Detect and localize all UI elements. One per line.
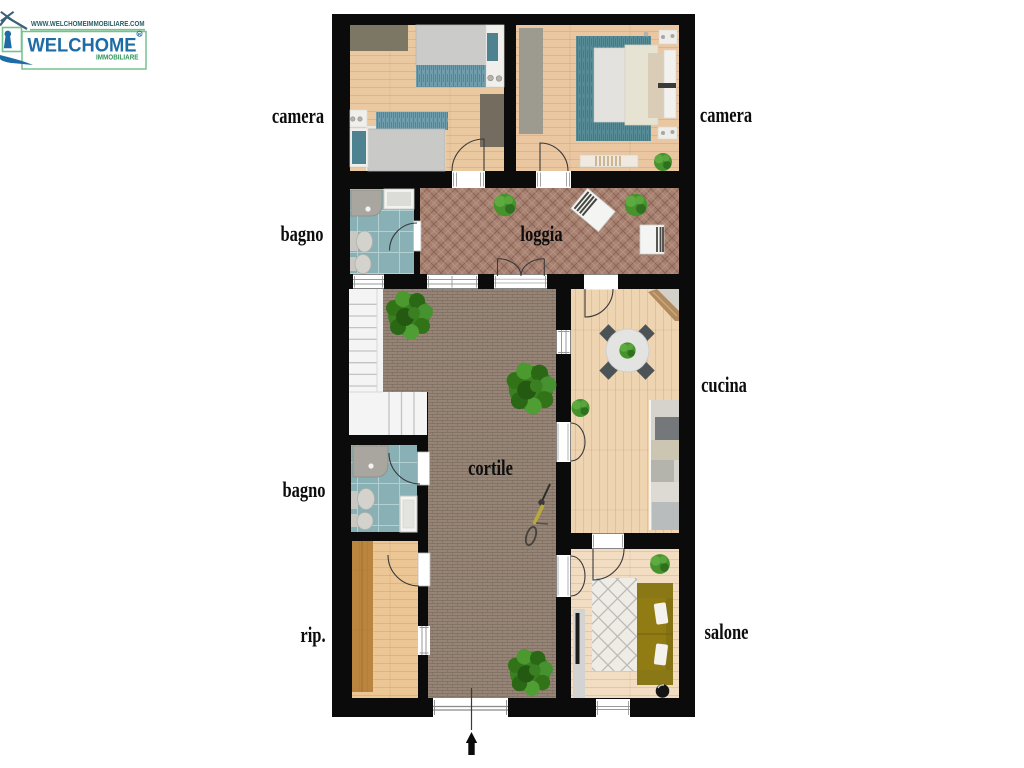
svg-text:rip.: rip. — [300, 624, 325, 648]
svg-text:WWW.WELCHOMEIMMOBILIARE.COM: WWW.WELCHOMEIMMOBILIARE.COM — [31, 21, 145, 28]
svg-text:bagno: bagno — [280, 223, 323, 247]
svg-text:cortile: cortile — [468, 457, 513, 481]
svg-text:camera: camera — [700, 104, 752, 128]
svg-text:IMMOBILIARE: IMMOBILIARE — [96, 53, 139, 62]
svg-text:camera: camera — [272, 105, 324, 129]
svg-text:cucina: cucina — [701, 374, 747, 398]
svg-text:loggia: loggia — [520, 223, 562, 247]
svg-text:bagno: bagno — [282, 479, 325, 503]
svg-text:salone: salone — [705, 621, 749, 645]
